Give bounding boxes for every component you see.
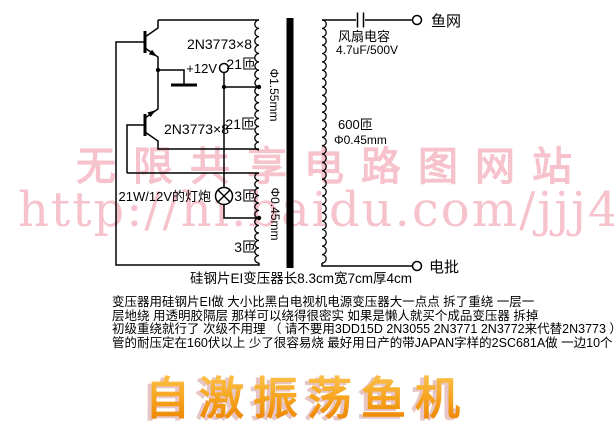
capacitor-value-label: 4.7uF/500V <box>336 43 398 57</box>
core-caption: 硅钢片EI变压器长8.3cm宽7cm厚4cm <box>190 270 412 286</box>
wire-q2-emitter <box>145 70 158 118</box>
junction-emitters <box>156 68 160 72</box>
electrode-terminal-label: 电批 <box>429 259 459 276</box>
wire-q2-base <box>127 125 145 173</box>
feedback-upper-turns-label: 3匝 <box>234 188 256 204</box>
primary-wire-gauge-label: Φ1.55mm <box>267 69 281 122</box>
wire-lamp-return <box>224 205 259 219</box>
net-terminal-label: 鱼网 <box>431 12 461 30</box>
primary-upper-turns-label: 21匝 <box>226 56 256 72</box>
secondary-turns-label: 600匝 <box>338 117 373 132</box>
secondary-winding <box>322 20 326 263</box>
wire-to-electrode-terminal <box>322 263 413 266</box>
feedback-lower-turns-label: 3匝 <box>234 239 256 255</box>
wire-ground-stub <box>158 70 184 85</box>
lamp-symbol <box>216 188 233 205</box>
transistor-top-label: 2N3773×8 <box>187 36 252 52</box>
transistor-bottom <box>145 110 156 136</box>
secondary-wire-gauge-label: Φ0.45mm <box>334 133 387 147</box>
lamp-label: 21W/12V的灯炮 <box>119 189 211 204</box>
primary-upper-winding <box>255 20 259 87</box>
transistor-top <box>145 31 157 57</box>
page-title: 自激振荡鱼机 <box>0 362 614 427</box>
supply-label: +12V <box>186 61 217 76</box>
junction-supply <box>222 85 226 89</box>
net-terminal <box>413 16 422 25</box>
primary-lower-winding <box>255 87 259 150</box>
transformer-core <box>287 18 294 268</box>
transistor-bottom-label: 2N3773×8 <box>164 121 229 137</box>
feedback-wire-gauge-label: Φ0.45mm <box>268 188 282 241</box>
electrode-terminal <box>413 262 422 271</box>
note-line-4: 管的耐压定在160伏以上 少了很容易烧 最好用日产的带JAPAN字样的2SC68… <box>112 332 613 351</box>
primary-lower-turns-label: 21匝 <box>225 116 255 132</box>
circuit-page: 无限共享电路图网站 http://hi.baidu.com/jjj4 <box>0 0 614 436</box>
wire-q1-collector <box>145 20 158 37</box>
capacitor-name-label: 风扇电容 <box>338 29 390 44</box>
